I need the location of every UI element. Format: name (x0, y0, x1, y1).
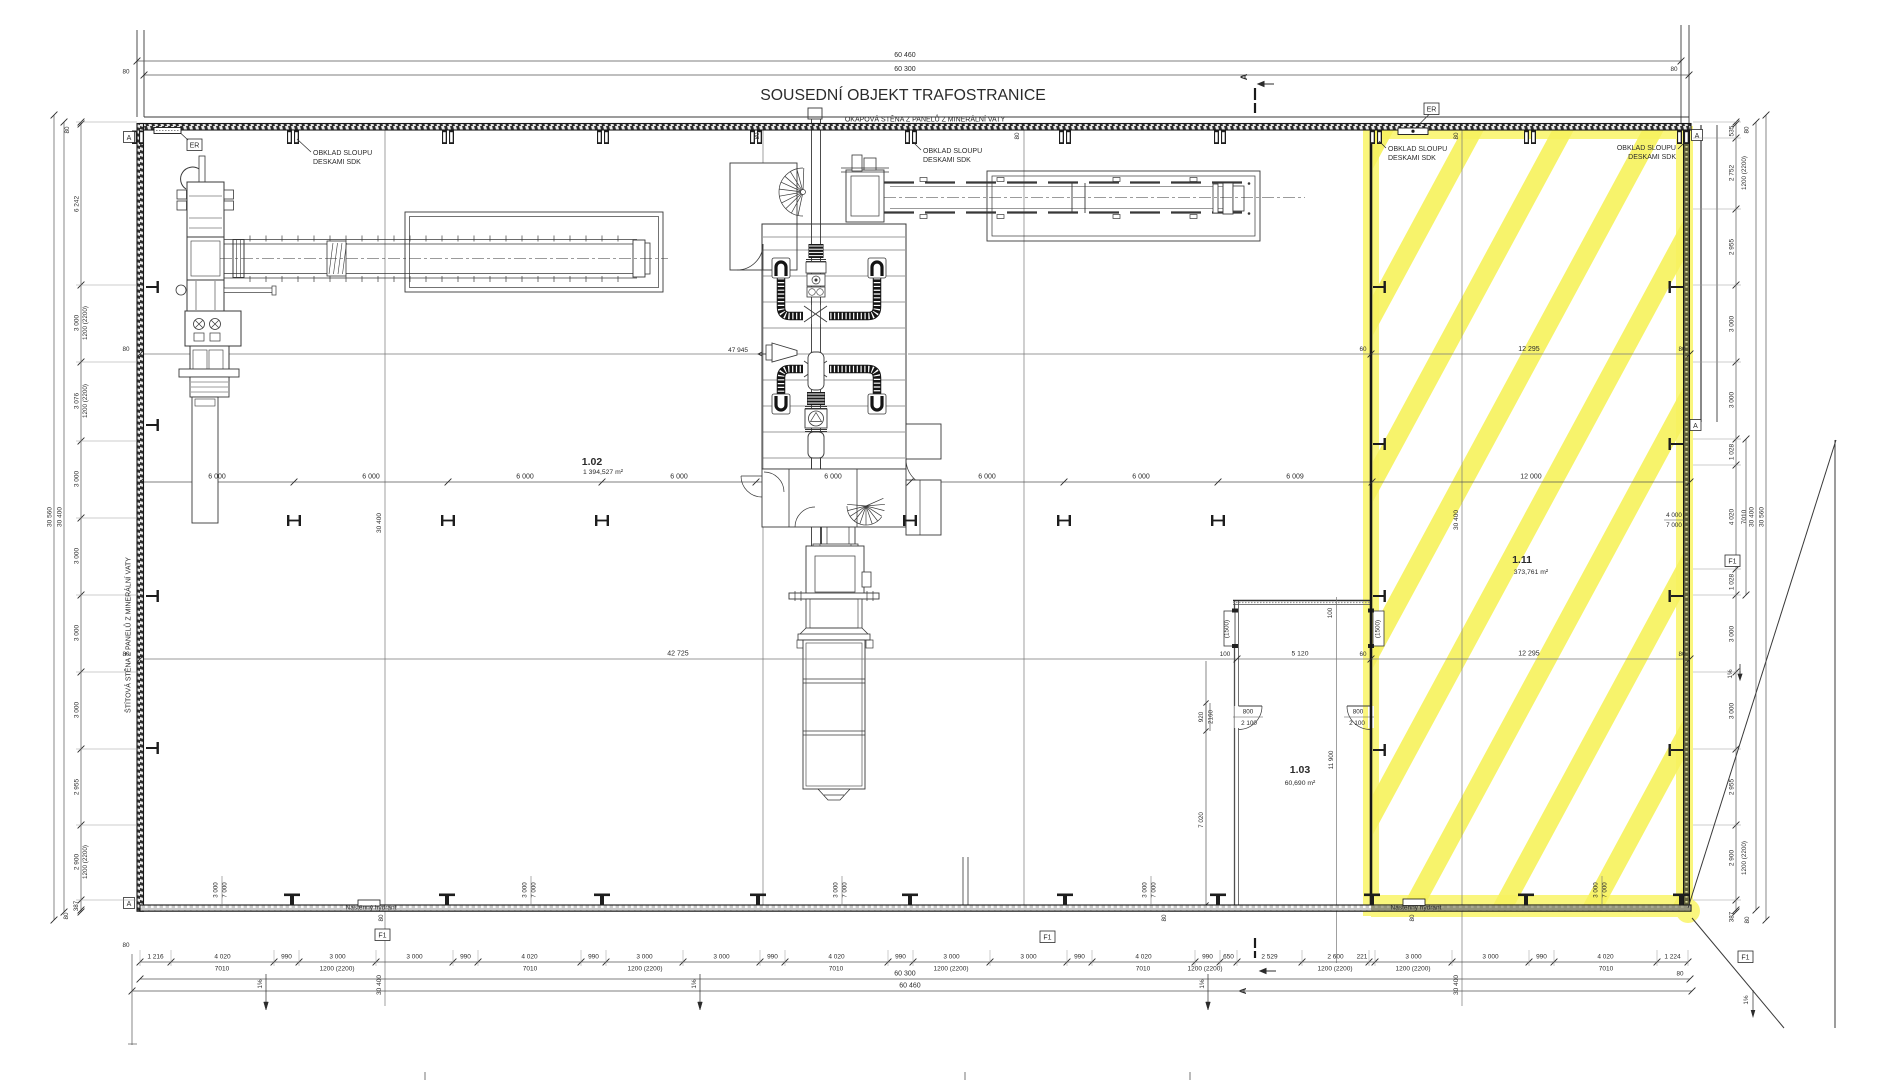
svg-text:1200 (2200): 1200 (2200) (1187, 966, 1222, 973)
svg-text:DESKAMI SDK: DESKAMI SDK (313, 159, 361, 166)
svg-text:OBKLAD SLOUPU: OBKLAD SLOUPU (923, 148, 982, 155)
svg-text:2 600: 2 600 (1327, 954, 1344, 961)
svg-text:A: A (1693, 423, 1698, 430)
svg-text:4 000: 4 000 (1666, 512, 1682, 519)
svg-text:80: 80 (1670, 66, 1678, 73)
svg-text:990: 990 (588, 954, 599, 961)
svg-text:1200 (2200): 1200 (2200) (933, 966, 968, 973)
svg-text:30 400: 30 400 (376, 513, 383, 533)
svg-text:12 295: 12 295 (1518, 651, 1540, 658)
svg-text:30 400: 30 400 (1749, 507, 1756, 527)
svg-text:60: 60 (1359, 346, 1367, 353)
svg-text:1200 (2200): 1200 (2200) (627, 966, 662, 973)
svg-text:A: A (127, 135, 132, 142)
svg-text:ŠTÍTOVÁ STĚNA Z PANELŮ Z MINER: ŠTÍTOVÁ STĚNA Z PANELŮ Z MINERÁLNÍ VATY (124, 557, 133, 713)
svg-text:80: 80 (1678, 346, 1686, 353)
svg-text:7010: 7010 (1741, 509, 1748, 524)
svg-text:990: 990 (1202, 954, 1213, 961)
svg-text:80: 80 (1678, 651, 1686, 658)
svg-text:80: 80 (1014, 132, 1021, 140)
svg-text:4 020: 4 020 (1597, 954, 1614, 961)
svg-text:100: 100 (1327, 607, 1334, 618)
svg-text:7010: 7010 (829, 966, 844, 973)
svg-text:3 000: 3 000 (1482, 954, 1499, 961)
svg-text:1 028: 1 028 (1729, 443, 1736, 460)
svg-text:3 000: 3 000 (74, 701, 81, 718)
svg-text:800: 800 (1243, 709, 1254, 716)
svg-text:221: 221 (1357, 954, 1368, 961)
svg-text:5 120: 5 120 (1291, 651, 1308, 658)
svg-text:7 000: 7 000 (1602, 882, 1609, 898)
svg-text:3 000: 3 000 (1729, 625, 1736, 642)
svg-text:1%: 1% (257, 979, 264, 989)
svg-text:2 100: 2 100 (1241, 720, 1257, 727)
svg-text:6 000: 6 000 (670, 474, 688, 481)
svg-text:A: A (1239, 73, 1249, 80)
svg-text:3 000: 3 000 (74, 547, 81, 564)
svg-text:F1: F1 (1728, 559, 1736, 566)
svg-text:1200 (2200): 1200 (2200) (1317, 966, 1352, 973)
svg-text:990: 990 (281, 954, 292, 961)
svg-text:DESKAMI SDK: DESKAMI SDK (1388, 155, 1436, 162)
svg-text:1%: 1% (1199, 979, 1206, 989)
svg-text:1200 (2200): 1200 (2200) (82, 306, 89, 340)
svg-text:OKAPOVÁ STĚNA Z PANELŮ Z MINER: OKAPOVÁ STĚNA Z PANELŮ Z MINERÁLNÍ VATY (845, 115, 1006, 124)
svg-text:2 955: 2 955 (1729, 778, 1736, 795)
svg-text:30 560: 30 560 (1759, 507, 1766, 527)
svg-text:ER: ER (1427, 107, 1437, 114)
svg-text:990: 990 (1074, 954, 1085, 961)
svg-text:Nástěnný hydrant: Nástěnný hydrant (1391, 905, 1442, 912)
svg-text:6 000: 6 000 (824, 474, 842, 481)
svg-text:373,761 m²: 373,761 m² (1514, 569, 1549, 576)
svg-text:80: 80 (754, 132, 761, 140)
svg-text:7010: 7010 (1136, 966, 1151, 973)
svg-text:6 242: 6 242 (74, 195, 81, 212)
svg-text:A: A (1695, 133, 1700, 140)
svg-text:3 000: 3 000 (1020, 954, 1037, 961)
svg-text:6 000: 6 000 (208, 474, 226, 481)
svg-text:1200 (2200): 1200 (2200) (1741, 841, 1748, 875)
svg-text:80: 80 (378, 914, 385, 922)
svg-text:DESKAMI SDK: DESKAMI SDK (1628, 154, 1676, 161)
svg-text:11 900: 11 900 (1328, 750, 1335, 769)
svg-text:920: 920 (1198, 711, 1205, 722)
svg-text:3 000: 3 000 (943, 954, 960, 961)
svg-text:7010: 7010 (523, 966, 538, 973)
svg-text:2160: 2160 (1208, 710, 1215, 725)
svg-text:3 000: 3 000 (1593, 882, 1600, 898)
svg-text:7010: 7010 (215, 966, 230, 973)
svg-text:4 020: 4 020 (1729, 508, 1736, 525)
svg-text:(1500): (1500) (1375, 620, 1382, 638)
svg-text:3 000: 3 000 (74, 624, 81, 641)
svg-text:F1: F1 (1741, 955, 1749, 962)
svg-text:3 000: 3 000 (406, 954, 423, 961)
svg-text:2 955: 2 955 (1729, 238, 1736, 255)
svg-text:30 400: 30 400 (57, 507, 64, 527)
svg-text:3 000: 3 000 (1729, 702, 1736, 719)
svg-text:2 900: 2 900 (1729, 849, 1736, 866)
svg-text:6 000: 6 000 (362, 474, 380, 481)
svg-text:7 000: 7 000 (1151, 882, 1158, 898)
svg-text:60 300: 60 300 (894, 971, 916, 978)
svg-text:6 000: 6 000 (1132, 474, 1150, 481)
svg-text:80: 80 (1409, 914, 1416, 922)
svg-text:990: 990 (460, 954, 471, 961)
svg-text:F1: F1 (378, 933, 386, 940)
svg-text:Nástěnný hydrant: Nástěnný hydrant (346, 905, 397, 912)
svg-text:30 400: 30 400 (1453, 510, 1460, 530)
svg-text:7 020: 7 020 (1198, 812, 1205, 828)
svg-text:OBKLAD SLOUPU: OBKLAD SLOUPU (1617, 145, 1676, 152)
svg-text:60: 60 (1359, 651, 1367, 658)
svg-text:12 000: 12 000 (1520, 474, 1542, 481)
svg-text:A: A (127, 901, 132, 908)
svg-text:3 000: 3 000 (1729, 315, 1736, 332)
svg-text:80: 80 (122, 942, 130, 949)
svg-text:3 000: 3 000 (636, 954, 653, 961)
svg-text:6 000: 6 000 (516, 474, 534, 481)
svg-text:990: 990 (1536, 954, 1547, 961)
svg-text:1.03: 1.03 (1290, 764, 1311, 776)
svg-text:3 076: 3 076 (74, 392, 81, 409)
svg-text:ER: ER (190, 143, 200, 150)
svg-text:7010: 7010 (1599, 966, 1614, 973)
svg-text:(1500): (1500) (1224, 620, 1231, 638)
svg-text:30 400: 30 400 (376, 975, 383, 995)
svg-text:2 752: 2 752 (1729, 164, 1736, 181)
svg-text:60 460: 60 460 (899, 983, 921, 990)
svg-text:80: 80 (1453, 132, 1460, 140)
svg-text:60 300: 60 300 (894, 66, 916, 73)
svg-text:12 295: 12 295 (1518, 346, 1540, 353)
svg-text:1200 (2200): 1200 (2200) (319, 966, 354, 973)
svg-text:30 560: 30 560 (47, 507, 54, 527)
svg-text:80: 80 (122, 346, 130, 353)
svg-text:100: 100 (1220, 651, 1231, 658)
svg-text:4 020: 4 020 (1135, 954, 1152, 961)
svg-text:1%: 1% (1743, 995, 1750, 1005)
svg-text:6 009: 6 009 (1286, 474, 1304, 481)
svg-text:535: 535 (1729, 125, 1736, 136)
svg-text:80: 80 (63, 912, 70, 920)
svg-text:800: 800 (1353, 709, 1364, 716)
svg-text:3 000: 3 000 (213, 882, 220, 898)
svg-text:3 000: 3 000 (1142, 882, 1149, 898)
svg-text:80: 80 (1744, 916, 1751, 924)
svg-text:1 216: 1 216 (147, 954, 164, 961)
svg-text:1200 (2200): 1200 (2200) (82, 384, 89, 418)
svg-text:1.11: 1.11 (1512, 554, 1532, 566)
svg-text:3 000: 3 000 (74, 470, 81, 487)
svg-text:1 028: 1 028 (1729, 573, 1736, 590)
svg-text:990: 990 (767, 954, 778, 961)
svg-text:60 460: 60 460 (894, 52, 916, 59)
svg-text:1 224: 1 224 (1664, 954, 1681, 961)
svg-text:2 955: 2 955 (74, 778, 81, 795)
svg-text:4 020: 4 020 (214, 954, 231, 961)
svg-text:1200 (2200): 1200 (2200) (1741, 156, 1748, 190)
svg-text:2 529: 2 529 (1261, 954, 1278, 961)
svg-text:OBKLAD SLOUPU: OBKLAD SLOUPU (1388, 146, 1447, 153)
svg-text:1.02: 1.02 (582, 456, 603, 468)
svg-text:7 000: 7 000 (531, 882, 538, 898)
svg-text:3 000: 3 000 (74, 314, 81, 331)
svg-text:650: 650 (1223, 954, 1234, 961)
svg-text:7 000: 7 000 (1666, 522, 1682, 529)
svg-text:F1: F1 (1043, 935, 1051, 942)
svg-text:1200 (2200): 1200 (2200) (1395, 966, 1430, 973)
svg-text:387: 387 (73, 900, 80, 911)
svg-text:3 000: 3 000 (522, 882, 529, 898)
svg-text:42 725: 42 725 (667, 651, 689, 658)
svg-text:3 000: 3 000 (713, 954, 730, 961)
svg-text:1200 (2200): 1200 (2200) (82, 845, 89, 879)
svg-text:SOUSEDNÍ OBJEKT TRAFOSTRANICE: SOUSEDNÍ OBJEKT TRAFOSTRANICE (760, 85, 1046, 104)
svg-text:4 020: 4 020 (828, 954, 845, 961)
svg-text:6 000: 6 000 (978, 474, 996, 481)
svg-text:1%: 1% (1727, 669, 1734, 679)
svg-text:80: 80 (122, 651, 130, 658)
svg-text:OBKLAD SLOUPU: OBKLAD SLOUPU (313, 150, 372, 157)
svg-text:7 000: 7 000 (222, 882, 229, 898)
svg-text:80: 80 (122, 69, 130, 76)
svg-text:47 945: 47 945 (728, 347, 748, 354)
svg-text:80: 80 (1676, 971, 1684, 978)
svg-text:30 400: 30 400 (1453, 975, 1460, 995)
svg-text:387: 387 (1729, 911, 1736, 922)
svg-text:3 000: 3 000 (833, 882, 840, 898)
svg-text:2 100: 2 100 (1349, 720, 1365, 727)
svg-text:60,690 m²: 60,690 m² (1285, 780, 1316, 787)
svg-text:4 020: 4 020 (521, 954, 538, 961)
svg-text:2 900: 2 900 (74, 853, 81, 870)
svg-text:80: 80 (1744, 126, 1751, 134)
svg-text:1%: 1% (691, 979, 698, 989)
svg-text:1 394,527 m²: 1 394,527 m² (583, 469, 624, 476)
svg-text:990: 990 (895, 954, 906, 961)
svg-text:3 000: 3 000 (1729, 391, 1736, 408)
svg-text:3 000: 3 000 (329, 954, 346, 961)
svg-text:DESKAMI SDK: DESKAMI SDK (923, 157, 971, 164)
svg-text:7 000: 7 000 (842, 882, 849, 898)
svg-text:80: 80 (1161, 914, 1168, 922)
svg-text:3 000: 3 000 (1405, 954, 1422, 961)
svg-text:80: 80 (64, 126, 71, 134)
